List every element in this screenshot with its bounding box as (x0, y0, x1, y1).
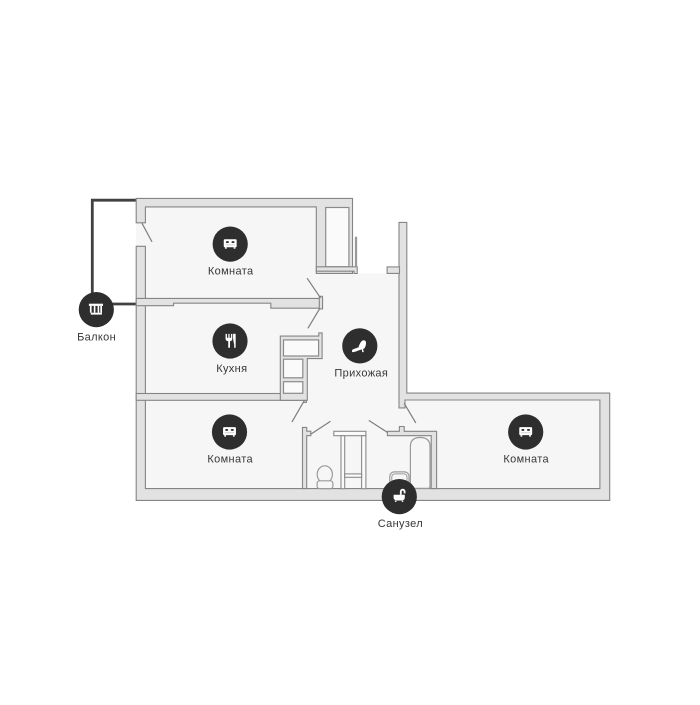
svg-text:Комната: Комната (207, 454, 253, 466)
svg-text:Санузел: Санузел (378, 518, 423, 530)
svg-text:Комната: Комната (208, 266, 254, 278)
svg-text:Комната: Комната (503, 454, 549, 466)
svg-text:Кухня: Кухня (216, 363, 247, 375)
svg-text:Балкон: Балкон (77, 332, 116, 344)
svg-text:Прихожая: Прихожая (334, 368, 388, 380)
